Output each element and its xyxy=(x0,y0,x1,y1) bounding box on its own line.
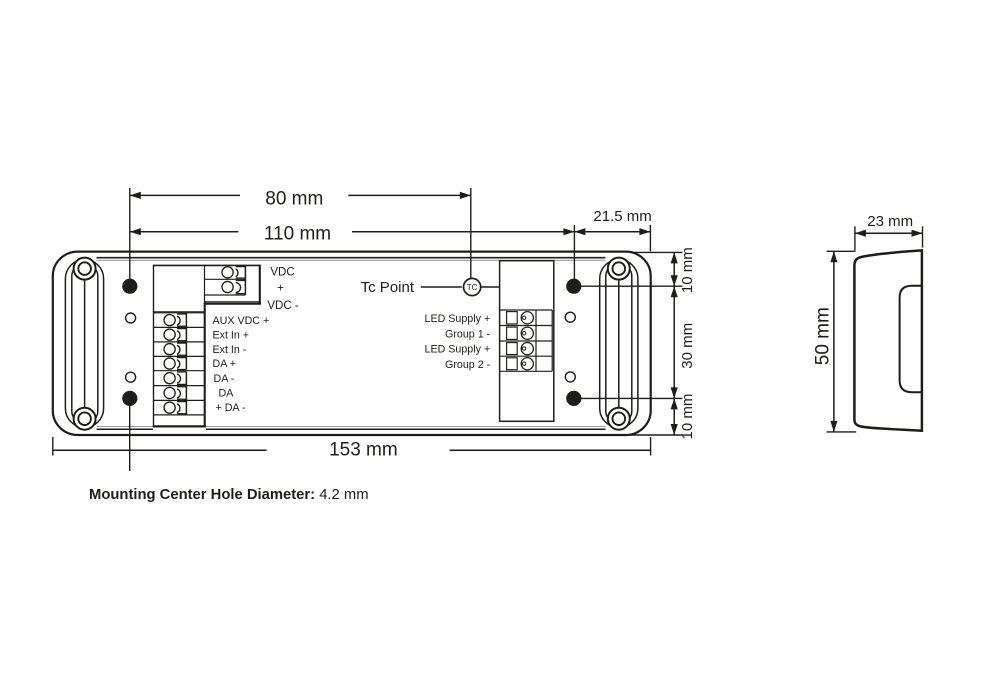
svg-text:Tc Point: Tc Point xyxy=(361,279,415,296)
svg-text:TC: TC xyxy=(467,283,478,292)
svg-text:+: + xyxy=(277,283,284,295)
svg-text:10 mm: 10 mm xyxy=(679,394,696,440)
svg-text:50 mm: 50 mm xyxy=(813,307,834,365)
svg-text:Group 1 -: Group 1 - xyxy=(445,328,491,340)
svg-text:AUX VDC +: AUX VDC + xyxy=(213,315,270,327)
svg-text:DA -: DA - xyxy=(214,373,235,385)
svg-text:+ DA -: + DA - xyxy=(216,402,246,414)
svg-text:30 mm: 30 mm xyxy=(679,323,696,369)
svg-text:Group 2 -: Group 2 - xyxy=(445,359,491,371)
svg-text:Mounting Center Hole Diameter:: Mounting Center Hole Diameter: 4.2 mm xyxy=(89,487,369,503)
svg-text:VDC: VDC xyxy=(270,267,294,279)
svg-text:110 mm: 110 mm xyxy=(264,223,331,244)
svg-text:80 mm: 80 mm xyxy=(265,189,323,210)
svg-text:VDC -: VDC - xyxy=(267,300,298,312)
svg-text:LED Supply +: LED Supply + xyxy=(425,313,491,325)
svg-text:153 mm: 153 mm xyxy=(329,440,398,461)
svg-text:21.5 mm: 21.5 mm xyxy=(593,208,651,225)
svg-text:Ext In +: Ext In + xyxy=(213,330,250,342)
svg-text:23 mm: 23 mm xyxy=(867,213,913,230)
svg-text:Ext In -: Ext In - xyxy=(213,344,247,356)
svg-text:DA +: DA + xyxy=(213,358,236,370)
svg-text:10 mm: 10 mm xyxy=(679,247,696,293)
svg-text:DA: DA xyxy=(219,388,235,400)
svg-text:LED Supply +: LED Supply + xyxy=(425,344,491,356)
